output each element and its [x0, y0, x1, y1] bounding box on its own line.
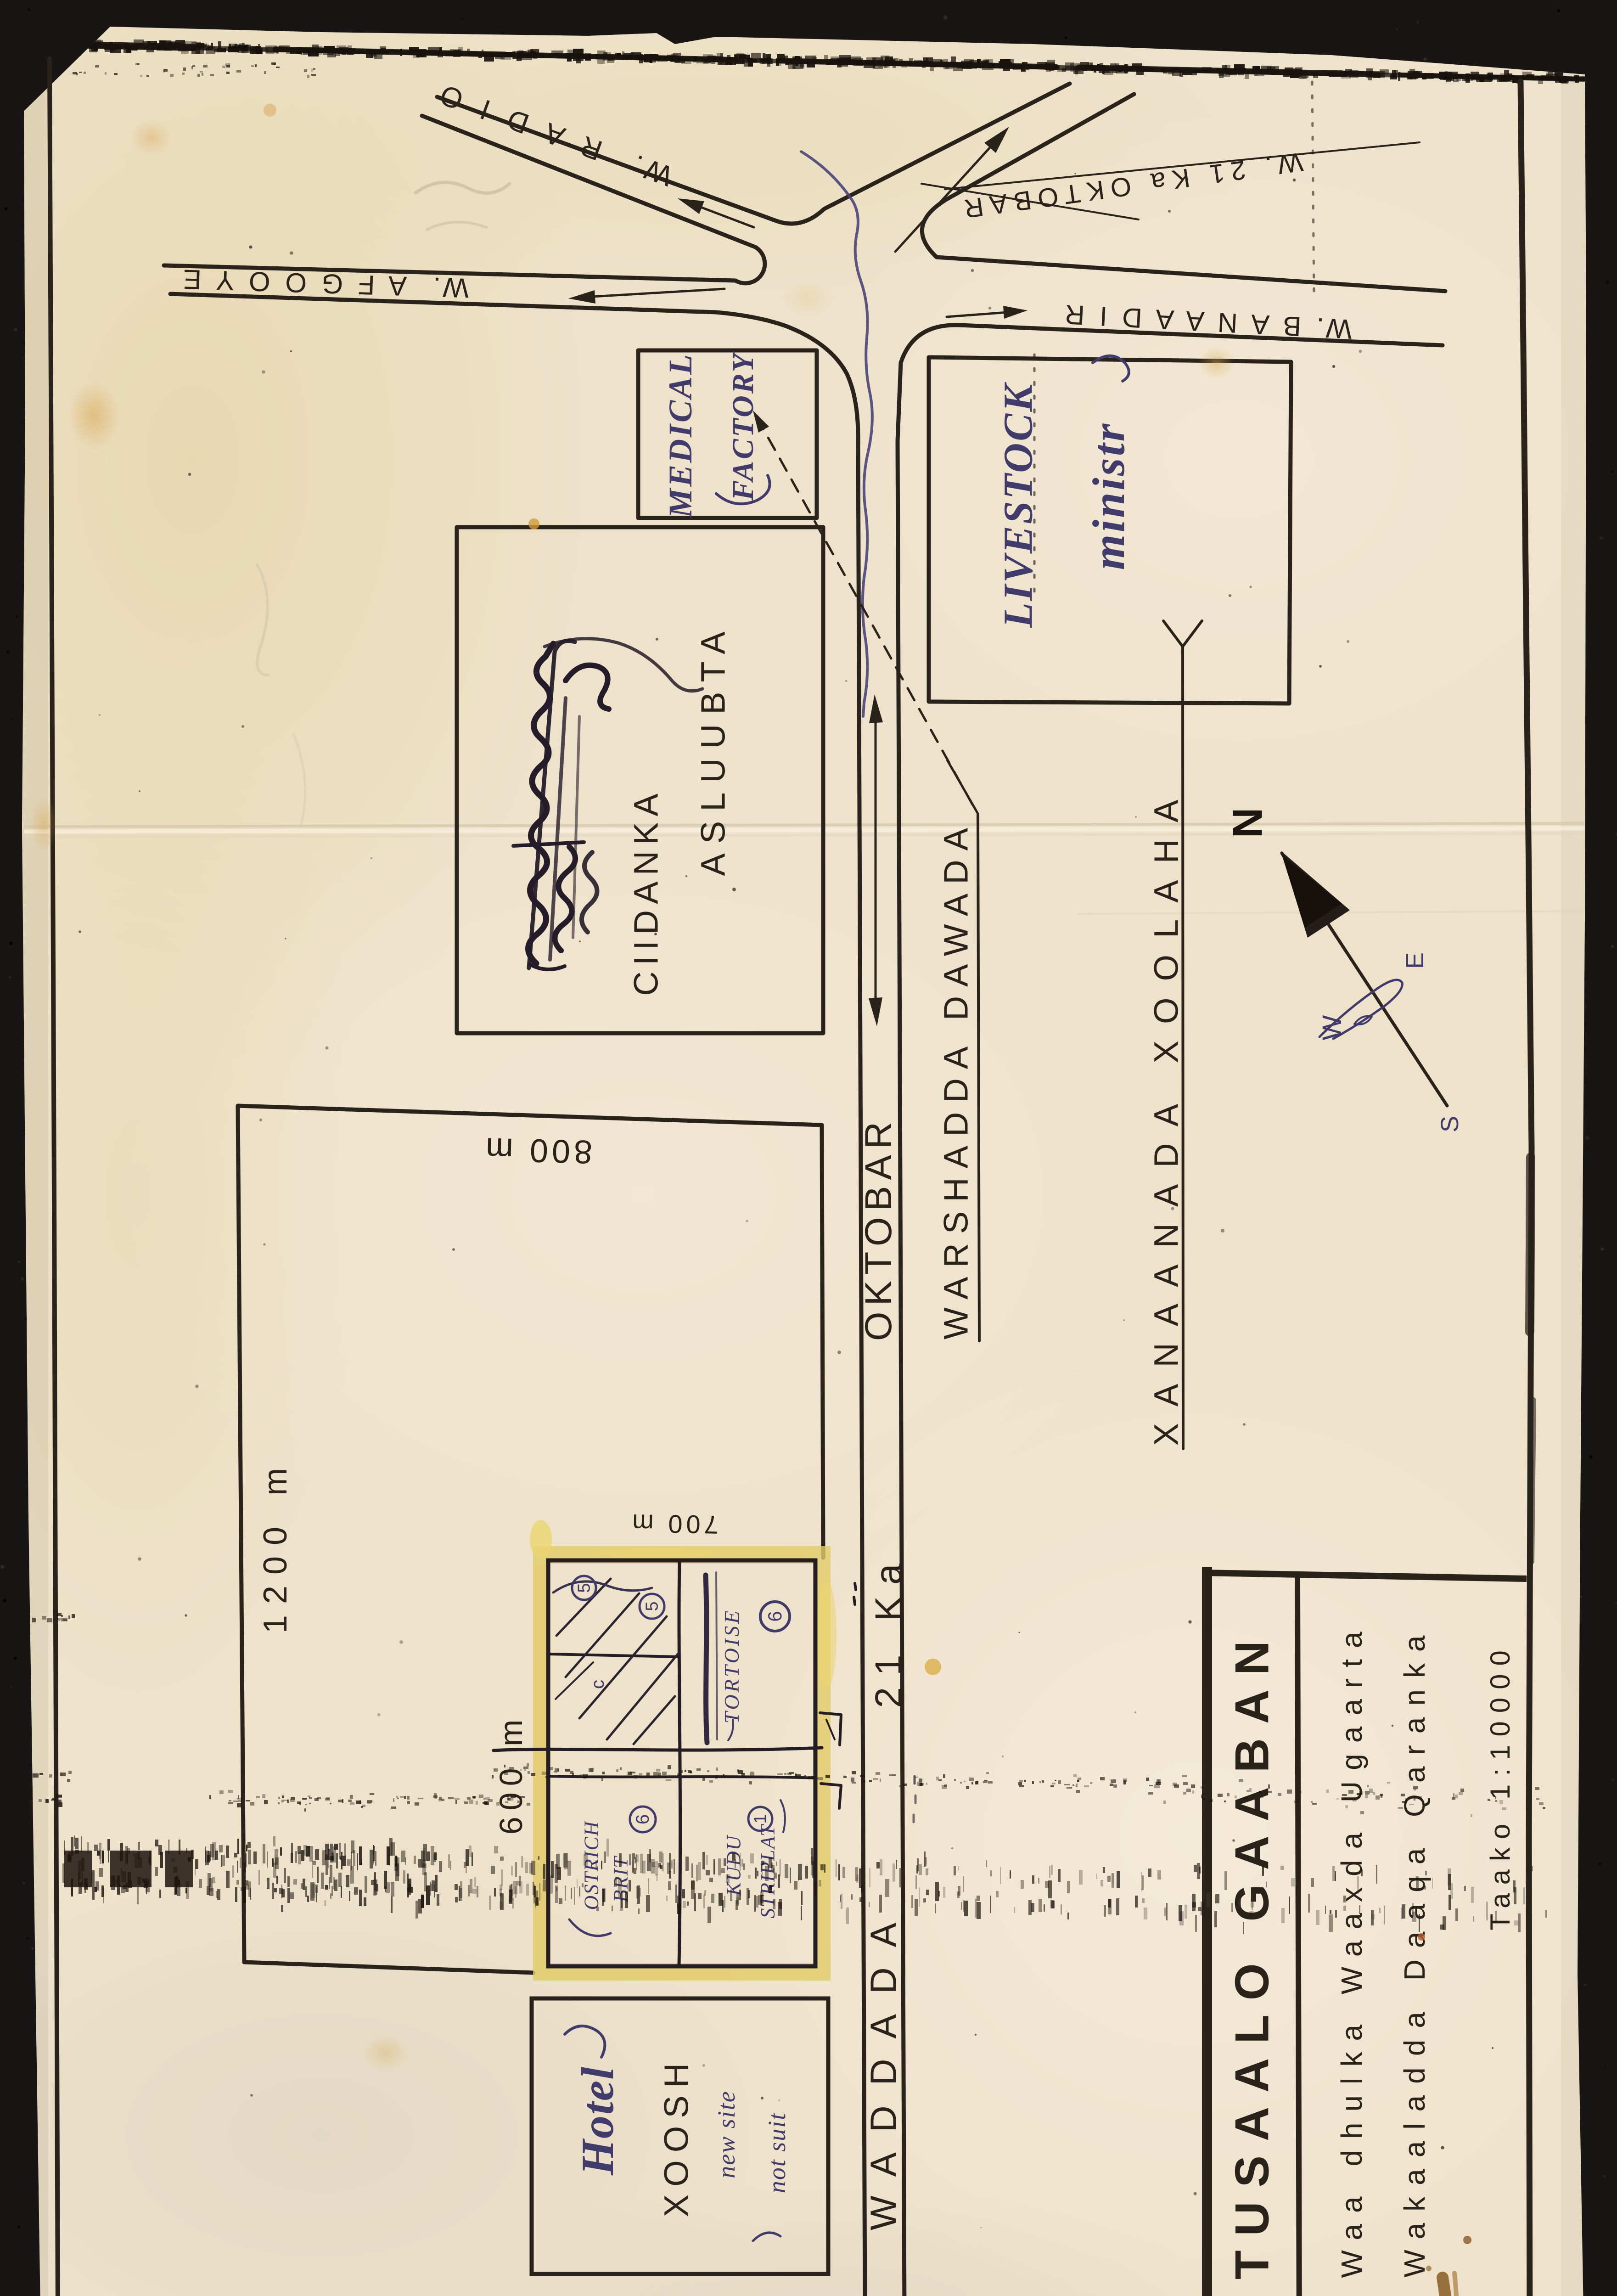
- svg-text:5: 5: [643, 1601, 662, 1611]
- svg-text:Waa dhulka Waaxda Ugaarta: Waa dhulka Waaxda Ugaarta: [1335, 1621, 1368, 2278]
- svg-text:1200 m: 1200 m: [257, 1457, 294, 1633]
- svg-text:TUSAALO GAABAN: TUSAALO GAABAN: [1225, 1626, 1279, 2279]
- svg-text:6: 6: [764, 1611, 786, 1621]
- svg-text:600 m: 600 m: [493, 1713, 529, 1835]
- svg-text:ASLUUBTA: ASLUUBTA: [694, 622, 732, 876]
- svg-text:6: 6: [633, 1814, 653, 1824]
- svg-text:E: E: [1401, 952, 1429, 969]
- svg-text:MEDICAL: MEDICAL: [662, 353, 699, 518]
- svg-text:1: 1: [751, 1814, 770, 1823]
- svg-text:Taako 1:10000: Taako 1:10000: [1485, 1642, 1516, 1930]
- svg-text:XANAANADA XOOLAHA: XANAANADA XOOLAHA: [1147, 783, 1185, 1446]
- svg-text:TORTOISE: TORTOISE: [720, 1609, 743, 1723]
- svg-text:not suit: not suit: [763, 2112, 791, 2194]
- svg-text:XOOSH: XOOSH: [657, 2055, 695, 2217]
- svg-text:WARSHADDA DAWADA: WARSHADDA DAWADA: [937, 819, 975, 1339]
- svg-text:Wakaaladda Daaqa Qaranka: Wakaaladda Daaqa Qaranka: [1398, 1624, 1431, 2277]
- svg-text:CIIDANKA: CIIDANKA: [627, 788, 665, 996]
- svg-text:700 m: 700 m: [629, 1509, 719, 1539]
- svg-text:WADDADA: WADDADA: [863, 1902, 904, 2230]
- svg-text:5: 5: [575, 1583, 594, 1593]
- svg-text:800 m: 800 m: [482, 1131, 593, 1170]
- svg-text:Hotel: Hotel: [572, 2066, 623, 2176]
- svg-text:21 Ka: 21 Ka: [868, 1552, 910, 1708]
- svg-text:OSTRICH: OSTRICH: [580, 1820, 603, 1910]
- svg-text:ministr: ministr: [1083, 422, 1134, 570]
- svg-text:W: W: [1317, 1015, 1347, 1040]
- svg-text:N: N: [1224, 808, 1271, 838]
- svg-text:OKTOBAR: OKTOBAR: [858, 1116, 899, 1341]
- svg-text:new site: new site: [713, 2090, 740, 2178]
- svg-text:FACTORY: FACTORY: [726, 351, 760, 501]
- svg-text:c: c: [588, 1680, 608, 1689]
- svg-text:S: S: [1436, 1116, 1464, 1132]
